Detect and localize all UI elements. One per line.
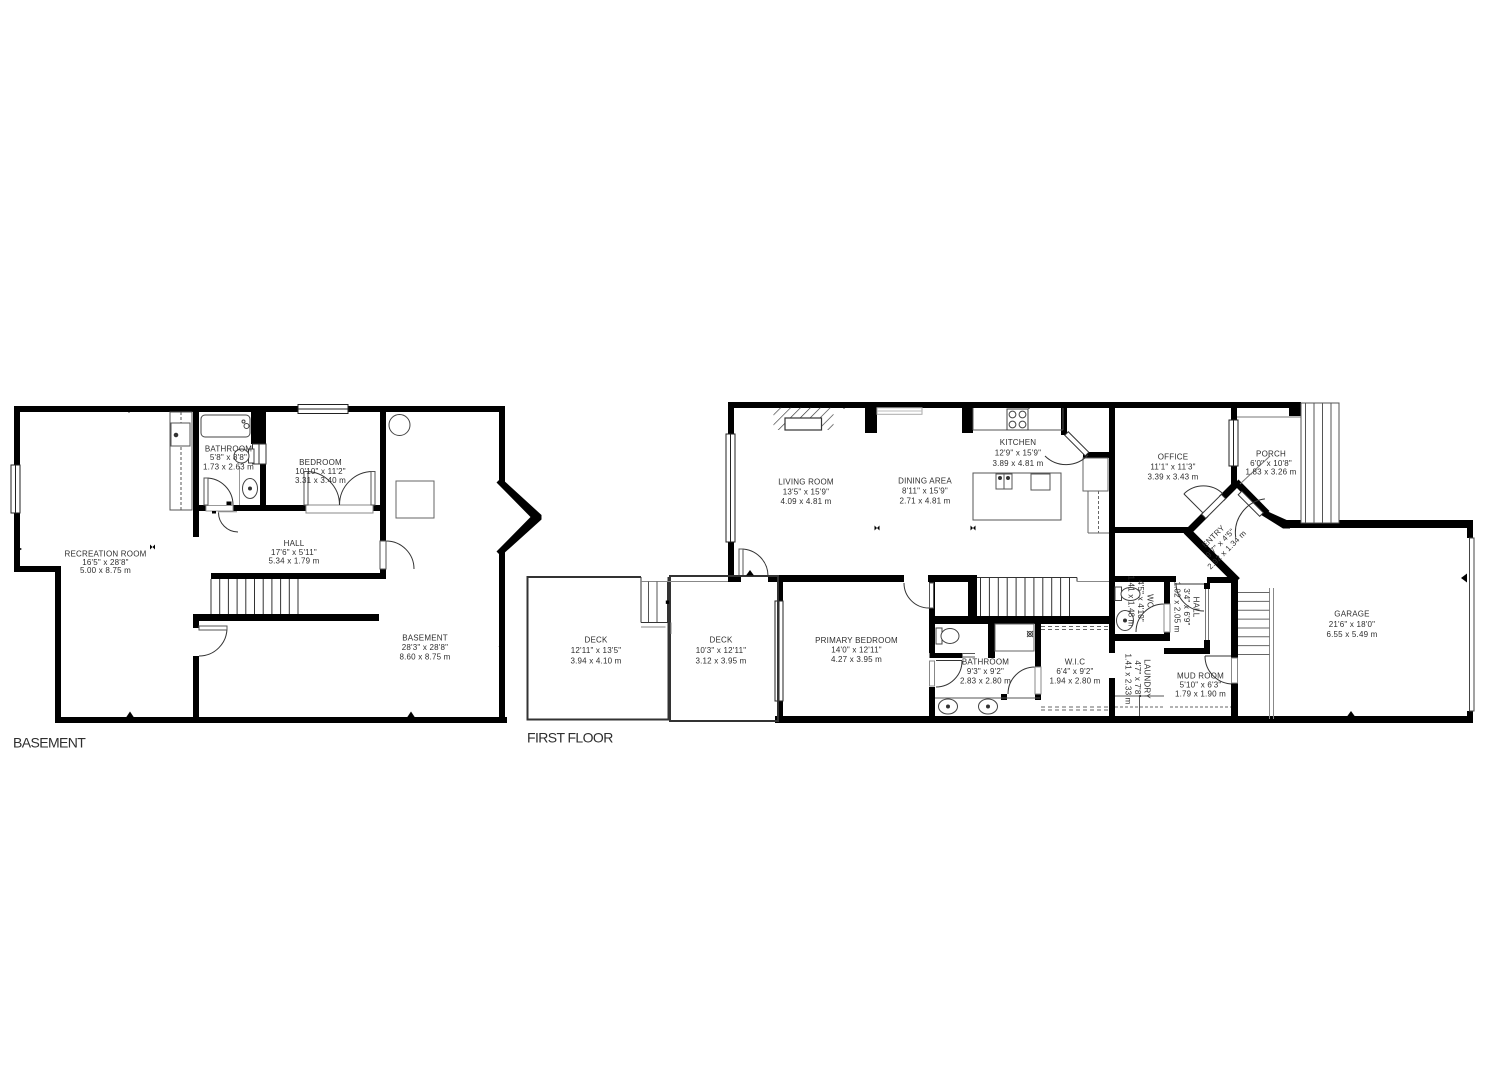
svg-text:11'1" x 11'3": 11'1" x 11'3" bbox=[1150, 462, 1195, 471]
svg-text:10'3" x 12'11": 10'3" x 12'11" bbox=[696, 646, 747, 655]
svg-text:4'5" x 4'10": 4'5" x 4'10" bbox=[1136, 580, 1145, 622]
svg-text:BASEMENT: BASEMENT bbox=[13, 735, 86, 751]
svg-text:DECK: DECK bbox=[709, 636, 732, 645]
svg-text:3.12 x 3.95 m: 3.12 x 3.95 m bbox=[695, 657, 746, 666]
svg-text:DINING AREA: DINING AREA bbox=[898, 477, 952, 486]
svg-text:GARAGE: GARAGE bbox=[1334, 610, 1369, 619]
svg-text:PORCH: PORCH bbox=[1256, 450, 1286, 459]
svg-text:13'5" x 15'9": 13'5" x 15'9" bbox=[783, 487, 829, 496]
svg-text:LIVING ROOM: LIVING ROOM bbox=[778, 478, 834, 487]
svg-text:3.89 x 4.81 m: 3.89 x 4.81 m bbox=[992, 459, 1043, 468]
svg-text:1.73 x 2.63 m: 1.73 x 2.63 m bbox=[203, 463, 254, 472]
svg-text:8.60 x 8.75 m: 8.60 x 8.75 m bbox=[399, 653, 450, 662]
svg-text:5'10" x 6'3": 5'10" x 6'3" bbox=[1180, 681, 1222, 690]
svg-text:8'11" x 15'9": 8'11" x 15'9" bbox=[902, 487, 948, 496]
svg-text:6'4" x 9'2": 6'4" x 9'2" bbox=[1056, 667, 1093, 676]
svg-text:KITCHEN: KITCHEN bbox=[1000, 438, 1037, 447]
svg-text:12'11" x 13'5": 12'11" x 13'5" bbox=[571, 646, 622, 655]
svg-text:1.41 x 2.33 m: 1.41 x 2.33 m bbox=[1124, 653, 1133, 704]
svg-text:5.34 x 1.79 m: 5.34 x 1.79 m bbox=[268, 557, 319, 566]
svg-text:BATHROOM: BATHROOM bbox=[962, 658, 1009, 667]
svg-text:HALL: HALL bbox=[1192, 597, 1201, 618]
svg-text:FIRST FLOOR: FIRST FLOOR bbox=[527, 730, 613, 746]
svg-text:BASEMENT: BASEMENT bbox=[402, 634, 448, 643]
svg-text:3'4" x 6'9": 3'4" x 6'9" bbox=[1182, 588, 1191, 625]
svg-text:DECK: DECK bbox=[584, 636, 607, 645]
svg-text:1.83 x 3.26 m: 1.83 x 3.26 m bbox=[1245, 468, 1296, 477]
svg-text:3.94 x 4.10 m: 3.94 x 4.10 m bbox=[570, 657, 621, 666]
svg-text:4.09 x 4.81 m: 4.09 x 4.81 m bbox=[780, 497, 831, 506]
svg-text:21'6" x 18'0": 21'6" x 18'0" bbox=[1329, 620, 1375, 629]
svg-text:2.83 x 2.80 m: 2.83 x 2.80 m bbox=[960, 677, 1011, 686]
svg-text:28'3" x 28'8": 28'3" x 28'8" bbox=[402, 643, 448, 652]
svg-text:12'9" x 15'9": 12'9" x 15'9" bbox=[995, 449, 1041, 458]
svg-text:9'3" x 9'2": 9'3" x 9'2" bbox=[967, 667, 1004, 676]
svg-text:WC: WC bbox=[1146, 594, 1155, 608]
svg-text:1.02 x 2.05 m: 1.02 x 2.05 m bbox=[1173, 581, 1182, 632]
svg-text:OFFICE: OFFICE bbox=[1158, 452, 1189, 461]
svg-text:BEDROOM: BEDROOM bbox=[299, 458, 342, 467]
svg-text:1.41 x 1.48 m: 1.41 x 1.48 m bbox=[1127, 575, 1136, 626]
svg-text:MUD ROOM: MUD ROOM bbox=[1177, 672, 1224, 681]
svg-text:3.39 x 3.43 m: 3.39 x 3.43 m bbox=[1147, 473, 1198, 482]
svg-text:5'8" x 8'8": 5'8" x 8'8" bbox=[210, 453, 247, 462]
svg-text:17'6" x 5'11": 17'6" x 5'11" bbox=[271, 548, 317, 557]
svg-text:14'0" x 12'11": 14'0" x 12'11" bbox=[831, 646, 882, 655]
svg-text:3.31 x 3.40 m: 3.31 x 3.40 m bbox=[295, 476, 346, 485]
svg-text:1.79 x 1.90 m: 1.79 x 1.90 m bbox=[1175, 690, 1226, 699]
svg-text:LAUNDRY: LAUNDRY bbox=[1143, 659, 1152, 699]
svg-text:HALL: HALL bbox=[284, 539, 305, 548]
svg-text:2.71 x 4.81 m: 2.71 x 4.81 m bbox=[899, 497, 950, 506]
svg-text:10'10" x 11'2": 10'10" x 11'2" bbox=[295, 467, 346, 476]
svg-text:6.55 x 5.49 m: 6.55 x 5.49 m bbox=[1326, 630, 1377, 639]
svg-text:1.94 x 2.80 m: 1.94 x 2.80 m bbox=[1049, 677, 1100, 686]
svg-text:4.27 x 3.95 m: 4.27 x 3.95 m bbox=[831, 655, 882, 664]
svg-text:PRIMARY BEDROOM: PRIMARY BEDROOM bbox=[815, 636, 898, 645]
svg-text:5.00 x 8.75 m: 5.00 x 8.75 m bbox=[80, 566, 131, 575]
svg-text:W.I.C: W.I.C bbox=[1065, 658, 1086, 667]
svg-text:4'7" x 7'8": 4'7" x 7'8" bbox=[1133, 660, 1142, 697]
